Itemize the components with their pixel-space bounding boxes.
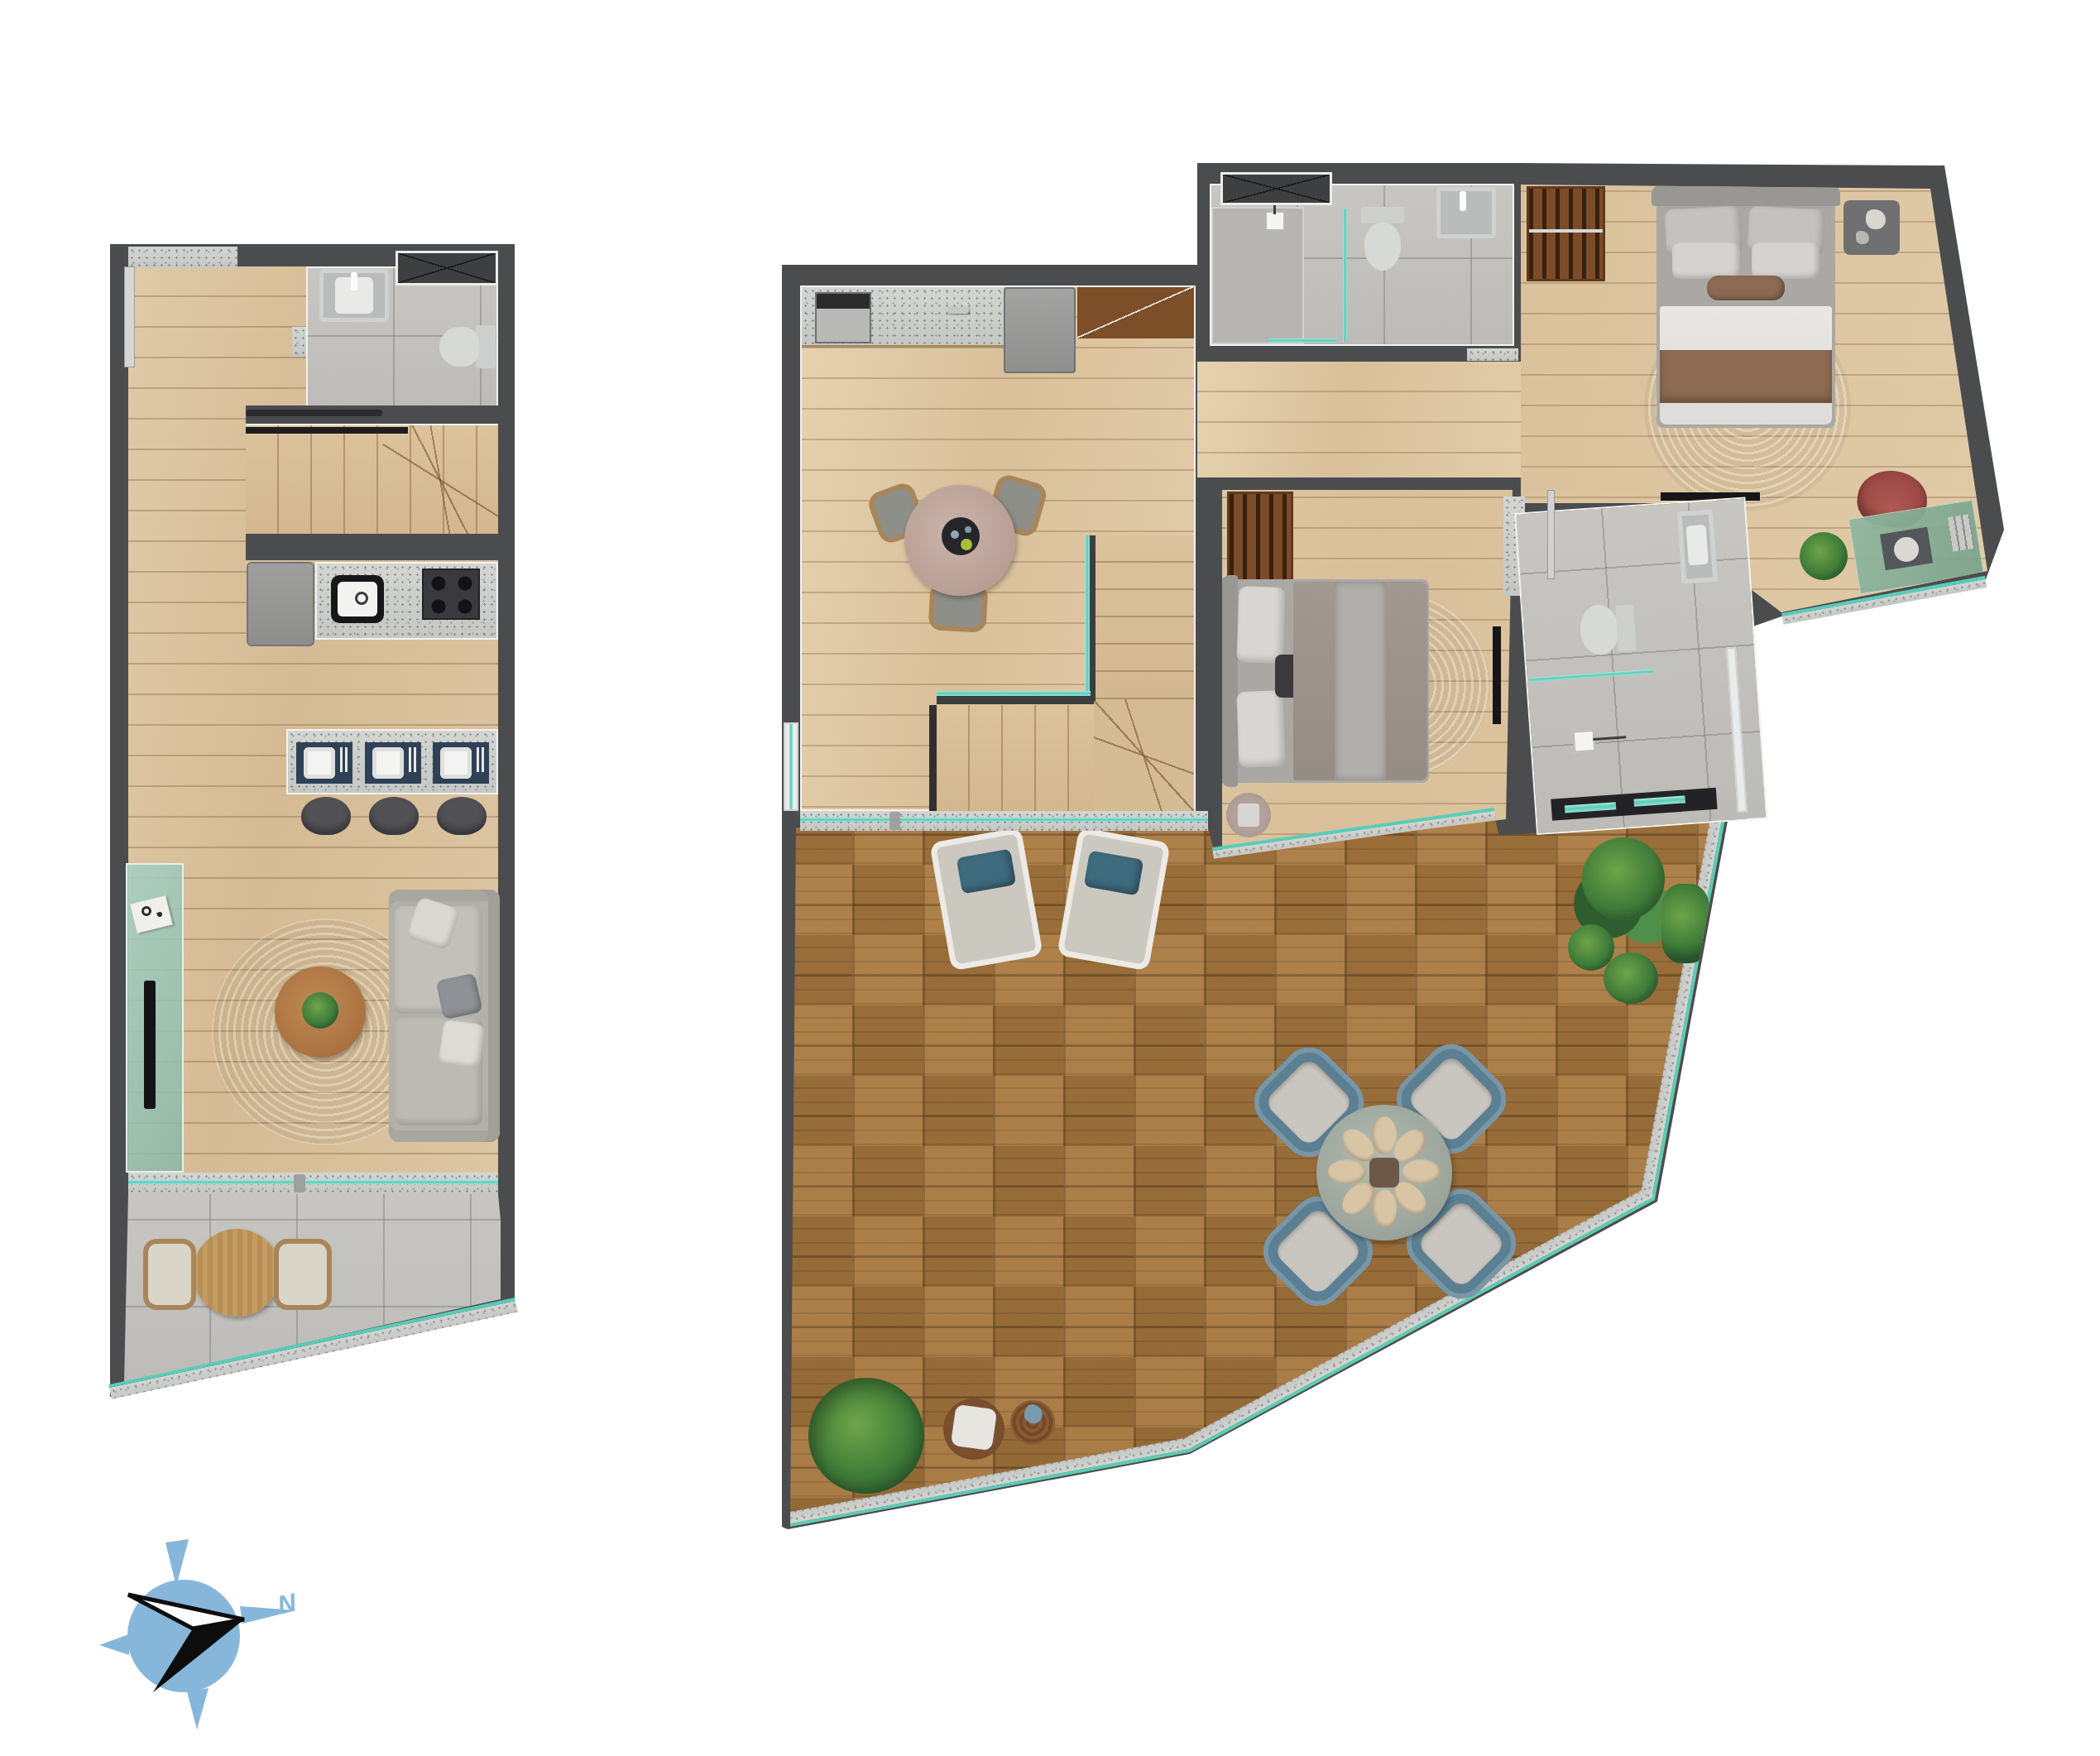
compass-spike-north: [165, 1539, 189, 1586]
compass-group: N: [99, 1539, 300, 1730]
floor-plan-canvas: N: [0, 0, 2100, 1756]
compass-spike-south: [187, 1688, 209, 1730]
compass-rose: N: [0, 0, 2100, 1756]
compass-spike-west: [99, 1634, 131, 1655]
